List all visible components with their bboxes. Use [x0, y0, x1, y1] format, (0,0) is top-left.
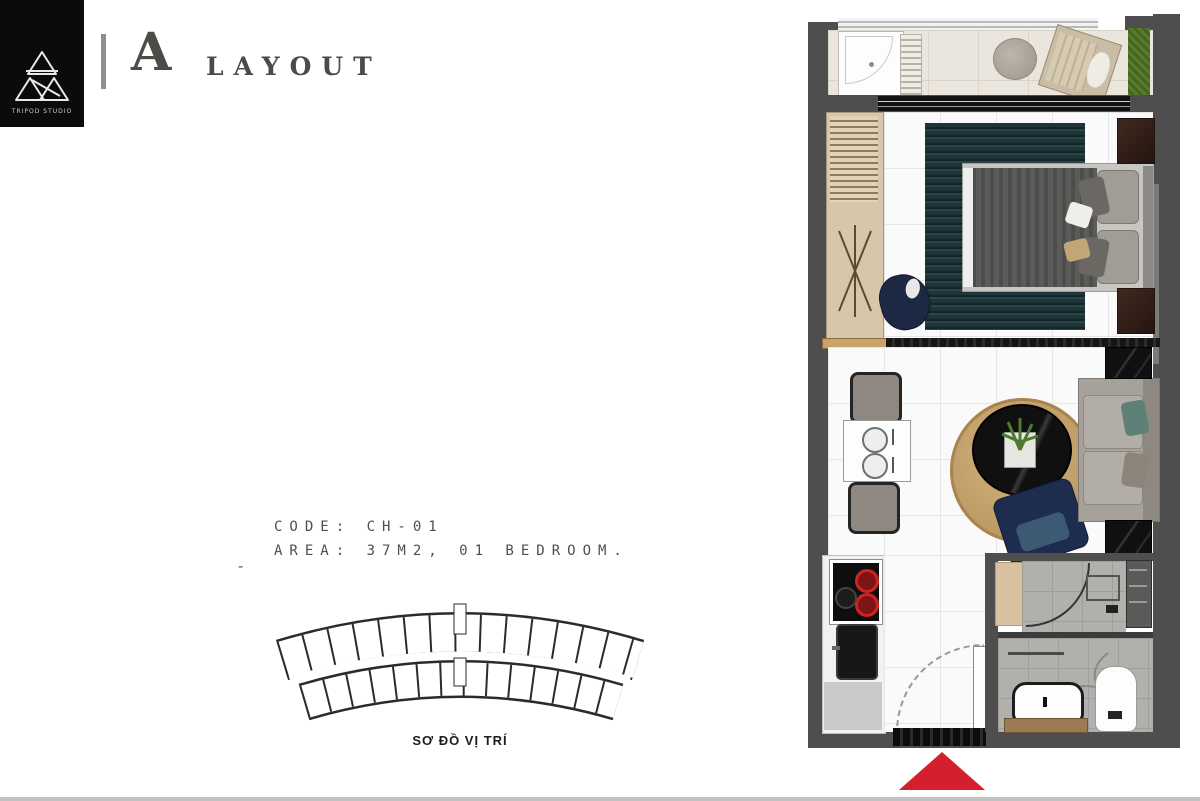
nightstand: [1117, 118, 1155, 164]
dash-mark: -: [238, 558, 243, 576]
storage-cabinet-marble: [1105, 347, 1152, 379]
page-title: LAYOUT: [206, 52, 382, 81]
plant-icon: [992, 412, 1048, 452]
plate: [862, 427, 888, 453]
vanity-counter: [1004, 718, 1088, 733]
shower-door-arc: [1026, 563, 1090, 627]
burner: [855, 593, 879, 617]
wall-bottom: [808, 732, 1180, 748]
cooktop: [830, 560, 882, 624]
wardrobe: [826, 112, 884, 342]
title-divider-bar: [101, 34, 106, 89]
sofa: [1078, 378, 1160, 522]
plate: [862, 453, 888, 479]
bedroom-window: [878, 96, 1130, 111]
kitchen-sink: [836, 624, 878, 680]
page-title-letter: A: [131, 22, 171, 83]
bathroom-shelf: [1126, 560, 1152, 628]
dining-chair: [850, 372, 902, 424]
toilet: [1095, 666, 1137, 732]
sofa-pillow: [1121, 451, 1149, 488]
wardrobe-decor-icon: [833, 221, 877, 321]
kettle: [835, 587, 857, 609]
layout-slide: { "brand": { "studio_name": "TRIPOD STUD…: [0, 0, 1200, 801]
studio-logo: TRIPOD STUDIO: [0, 0, 84, 127]
bed: [962, 163, 1154, 292]
entry-door-mat: [893, 728, 986, 746]
balcony-plant: [1128, 28, 1150, 96]
shower-floor: [1022, 561, 1126, 634]
pouf-table: [993, 38, 1037, 80]
location-map-caption: SƠ ĐỒ VỊ TRÍ: [268, 733, 652, 748]
bedroom-living-divider: [886, 338, 1160, 347]
shower-drain: [1086, 575, 1120, 601]
shower-head: [1106, 605, 1118, 613]
floor-plan: [808, 14, 1180, 748]
dining-chair: [848, 482, 900, 534]
nightstand: [1117, 288, 1155, 334]
tripod-triangles-icon: [10, 50, 74, 106]
page-edge: [0, 797, 1200, 801]
location-map: [268, 596, 652, 730]
dining-table: [843, 420, 911, 482]
unit-code: CODE: CH-01: [274, 519, 444, 535]
entrance-arrow: [899, 752, 985, 790]
faucet: [1043, 697, 1047, 707]
burner: [855, 569, 879, 593]
bath-mat: [995, 562, 1023, 626]
washing-machine: [838, 31, 904, 97]
unit-area: AREA: 37M2, 01 BEDROOM.: [274, 543, 629, 559]
kitchen-cabinet: [824, 682, 882, 730]
drying-rack: [900, 34, 922, 96]
studio-name: TRIPOD STUDIO: [0, 108, 84, 115]
